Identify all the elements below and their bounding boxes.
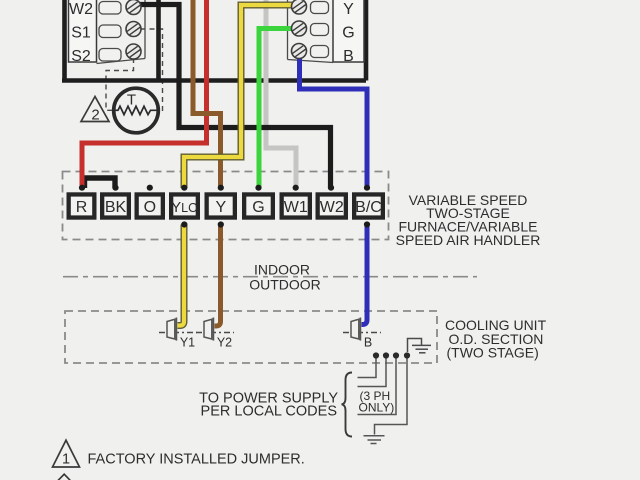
svg-text:G: G <box>342 25 354 42</box>
svg-text:(TWO STAGE): (TWO STAGE) <box>447 344 539 360</box>
svg-text:INDOOR: INDOOR <box>254 262 310 278</box>
svg-text:T: T <box>127 91 136 108</box>
svg-text:B/C: B/C <box>355 199 382 216</box>
svg-text:YLO: YLO <box>171 199 198 216</box>
svg-text:OUTDOOR: OUTDOOR <box>249 277 321 293</box>
svg-text:W1: W1 <box>284 199 308 216</box>
svg-text:S2: S2 <box>71 48 91 65</box>
svg-text:B: B <box>343 48 354 65</box>
svg-text:W2: W2 <box>69 1 93 18</box>
svg-text:BK: BK <box>105 199 127 216</box>
svg-text:B: B <box>364 336 372 350</box>
svg-text:2: 2 <box>91 107 99 124</box>
svg-text:ONLY): ONLY) <box>359 401 395 415</box>
svg-text:FACTORY INSTALLED JUMPER.: FACTORY INSTALLED JUMPER. <box>88 452 305 468</box>
svg-text:R: R <box>76 199 88 216</box>
svg-text:Y2: Y2 <box>217 336 232 350</box>
svg-text:O: O <box>144 199 156 216</box>
svg-text:Y: Y <box>343 1 354 18</box>
svg-text:S1: S1 <box>71 25 91 42</box>
svg-text:SPEED AIR HANDLER: SPEED AIR HANDLER <box>396 232 541 248</box>
svg-text:W2: W2 <box>320 199 344 216</box>
svg-text:G: G <box>252 199 264 216</box>
svg-text:1: 1 <box>62 452 70 468</box>
svg-text:PER LOCAL CODES: PER LOCAL CODES <box>201 404 337 420</box>
svg-text:Y: Y <box>215 199 226 216</box>
svg-text:Y1: Y1 <box>180 336 195 350</box>
